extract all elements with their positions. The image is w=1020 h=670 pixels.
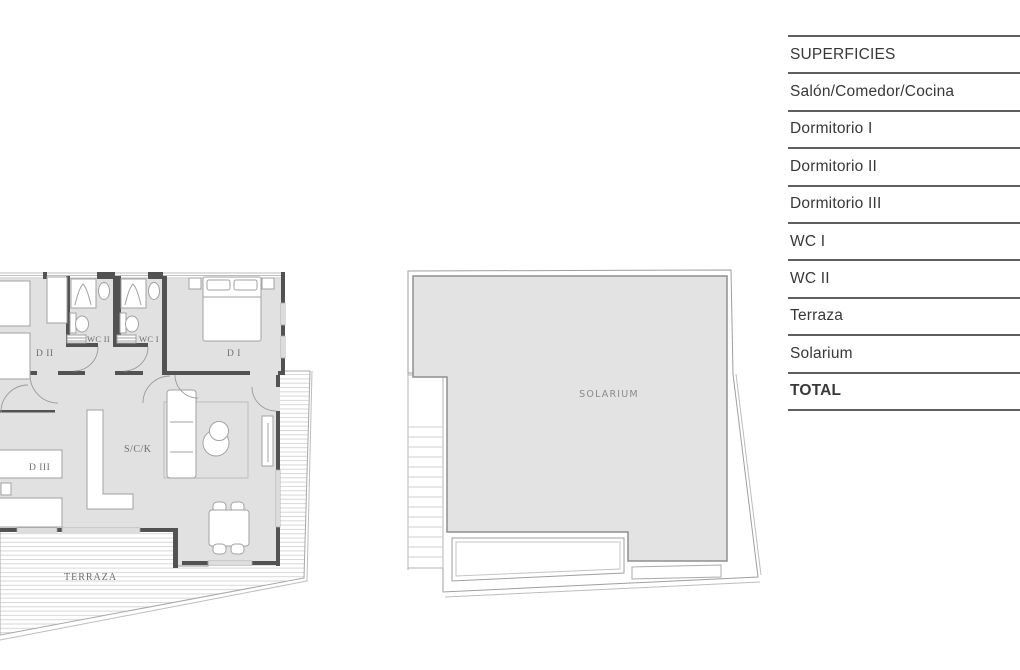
table-row-total: TOTAL: [788, 374, 1020, 411]
stairs: [408, 375, 443, 568]
label-dormitorio1: D I: [227, 349, 241, 359]
table-row-dormitorio-1: Dormitorio I: [788, 112, 1020, 149]
table-row-terraza: Terraza: [788, 299, 1020, 336]
label-sck: S/C/K: [124, 444, 152, 455]
table-row-wc-1: WC I: [788, 224, 1020, 261]
floor-plan-apartment: D II WC II WC I D I D III S/C/K TERRAZA: [0, 272, 312, 640]
table-row-solarium: Solarium: [788, 336, 1020, 373]
table-row-salon-comedor-cocina: Salón/Comedor/Cocina: [788, 74, 1020, 111]
table-row-wc-2: WC II: [788, 261, 1020, 298]
surfaces-table-header: SUPERFICIES: [788, 37, 1020, 74]
floorplan-sheet: D II WC II WC I D I D III S/C/K TERRAZA: [0, 0, 1020, 670]
floor-plan-solarium: SOLARIUM: [408, 270, 761, 597]
table-row-dormitorio-3: Dormitorio III: [788, 187, 1020, 224]
label-dormitorio2: D II: [36, 349, 54, 359]
surfaces-table: SUPERFICIES Salón/Comedor/Cocina Dormito…: [788, 35, 1020, 411]
label-wc2: WC II: [87, 334, 110, 344]
label-wc1: WC I: [139, 334, 159, 344]
table-row-dormitorio-2: Dormitorio II: [788, 149, 1020, 186]
label-dormitorio3: D III: [29, 463, 50, 473]
label-solarium: SOLARIUM: [579, 389, 639, 400]
label-terraza: TERRAZA: [64, 572, 117, 583]
solarium-deck: [413, 276, 727, 561]
